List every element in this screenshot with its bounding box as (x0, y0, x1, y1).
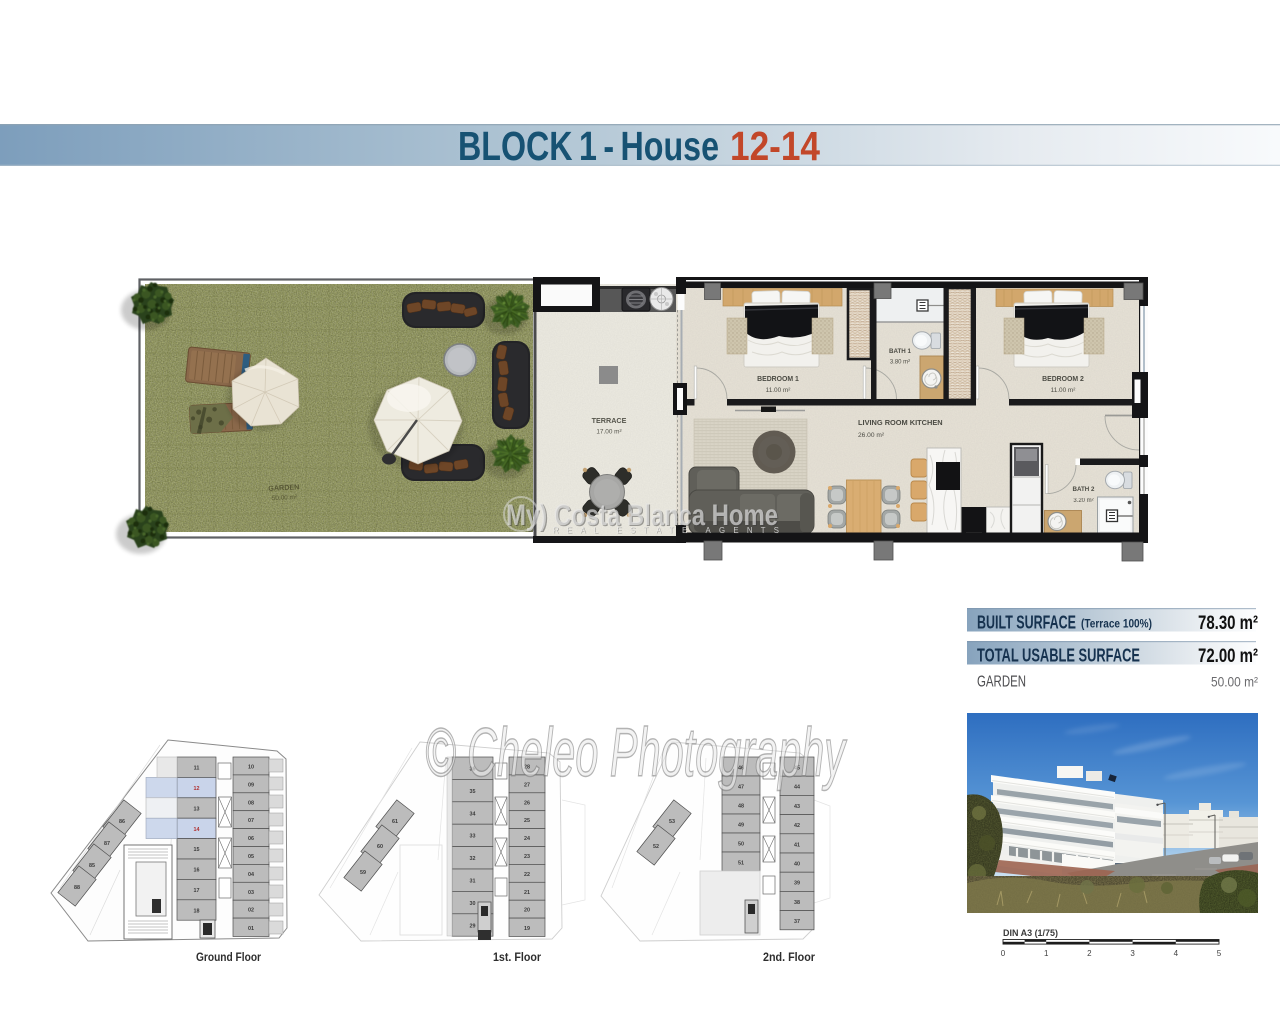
svg-text:BLOCK 1 - House: BLOCK 1 - House (458, 123, 719, 169)
svg-text:72.00 m²: 72.00 m² (1198, 646, 1258, 667)
svg-text:26.00 m²: 26.00 m² (858, 432, 885, 439)
svg-text:18: 18 (194, 908, 200, 914)
svg-text:02: 02 (248, 908, 254, 914)
svg-text:1: 1 (1044, 949, 1049, 958)
svg-text:01: 01 (248, 926, 254, 932)
svg-text:13: 13 (194, 806, 200, 812)
svg-text:50.00 m²: 50.00 m² (272, 494, 298, 502)
svg-text:32: 32 (470, 856, 476, 862)
svg-text:BUILT SURFACE: BUILT SURFACE (977, 613, 1076, 633)
svg-text:© Cheleo Photography: © Cheleo Photography (425, 714, 847, 791)
svg-text:LIVING ROOM KITCHEN: LIVING ROOM KITCHEN (858, 418, 943, 427)
svg-text:17.00 m²: 17.00 m² (596, 429, 621, 436)
svg-text:3: 3 (1130, 949, 1135, 958)
svg-text:3.20 m²: 3.20 m² (1073, 498, 1093, 504)
svg-text:21: 21 (524, 890, 530, 896)
svg-text:37: 37 (794, 919, 800, 925)
svg-text:TOTAL USABLE SURFACE: TOTAL USABLE SURFACE (977, 646, 1140, 666)
svg-text:53: 53 (669, 819, 675, 825)
svg-text:10: 10 (248, 765, 254, 771)
svg-text:85: 85 (89, 863, 95, 869)
svg-text:11.00 m²: 11.00 m² (766, 387, 791, 394)
svg-text:17: 17 (194, 888, 200, 894)
svg-text:GARDEN: GARDEN (268, 482, 300, 493)
svg-text:49: 49 (738, 823, 744, 829)
svg-text:1st. Floor: 1st. Floor (493, 952, 541, 964)
svg-text:59: 59 (360, 870, 366, 876)
svg-text:88: 88 (74, 885, 80, 891)
svg-text:31: 31 (470, 879, 476, 885)
svg-text:33: 33 (470, 834, 476, 840)
svg-text:43: 43 (794, 804, 800, 810)
svg-text:38: 38 (794, 900, 800, 906)
svg-text:2nd. Floor: 2nd. Floor (763, 952, 815, 964)
svg-text:87: 87 (104, 841, 110, 847)
svg-text:03: 03 (248, 890, 254, 896)
svg-text:19: 19 (524, 926, 530, 932)
svg-text:BEDROOM 2: BEDROOM 2 (1042, 376, 1084, 383)
svg-text:48: 48 (738, 804, 744, 810)
svg-text:3.80 m²: 3.80 m² (890, 360, 910, 366)
svg-text:51: 51 (738, 861, 744, 867)
svg-text:BEDROOM 1: BEDROOM 1 (757, 376, 799, 383)
svg-text:24: 24 (524, 836, 530, 842)
svg-text:09: 09 (248, 782, 254, 788)
svg-text:BATH 1: BATH 1 (889, 348, 911, 355)
svg-text:20: 20 (524, 908, 530, 914)
svg-text:16: 16 (194, 868, 200, 874)
svg-text:12: 12 (194, 786, 200, 792)
svg-text:4: 4 (1174, 949, 1179, 958)
svg-text:42: 42 (794, 823, 800, 829)
svg-text:Ground Floor: Ground Floor (196, 952, 261, 964)
svg-text:BATH 2: BATH 2 (1073, 486, 1095, 493)
svg-text:41: 41 (794, 842, 800, 848)
svg-text:29: 29 (470, 923, 476, 929)
svg-text:08: 08 (248, 800, 254, 806)
svg-text:DIN A3 (1/75): DIN A3 (1/75) (1003, 928, 1058, 939)
svg-text:0: 0 (1001, 949, 1006, 958)
svg-text:78.30 m²: 78.30 m² (1198, 613, 1258, 634)
svg-text:15: 15 (194, 847, 200, 853)
svg-text:40: 40 (794, 862, 800, 868)
svg-text:(Terrace 100%): (Terrace 100%) (1081, 619, 1152, 631)
svg-text:05: 05 (248, 854, 254, 860)
svg-text:61: 61 (392, 819, 398, 825)
svg-text:GARDEN: GARDEN (977, 674, 1026, 691)
svg-text:07: 07 (248, 818, 254, 824)
svg-text:11.00 m²: 11.00 m² (1051, 387, 1076, 394)
svg-text:52: 52 (653, 844, 659, 850)
svg-text:60: 60 (377, 844, 383, 850)
svg-text:23: 23 (524, 854, 530, 860)
svg-text:12-14: 12-14 (730, 123, 820, 169)
svg-text:04: 04 (248, 872, 254, 878)
svg-text:30: 30 (470, 901, 476, 907)
svg-text:25: 25 (524, 818, 530, 824)
svg-text:22: 22 (524, 872, 530, 878)
svg-text:26: 26 (524, 800, 530, 806)
svg-text:TERRACE: TERRACE (592, 416, 627, 425)
svg-text:39: 39 (794, 881, 800, 887)
svg-text:14: 14 (194, 827, 200, 833)
svg-text:11: 11 (194, 766, 200, 772)
svg-text:5: 5 (1217, 949, 1222, 958)
svg-text:50.00 m²: 50.00 m² (1211, 674, 1258, 690)
svg-text:06: 06 (248, 836, 254, 842)
svg-text:86: 86 (119, 819, 125, 825)
svg-text:2: 2 (1087, 949, 1092, 958)
svg-text:34: 34 (470, 811, 476, 817)
svg-text:50: 50 (738, 842, 744, 848)
